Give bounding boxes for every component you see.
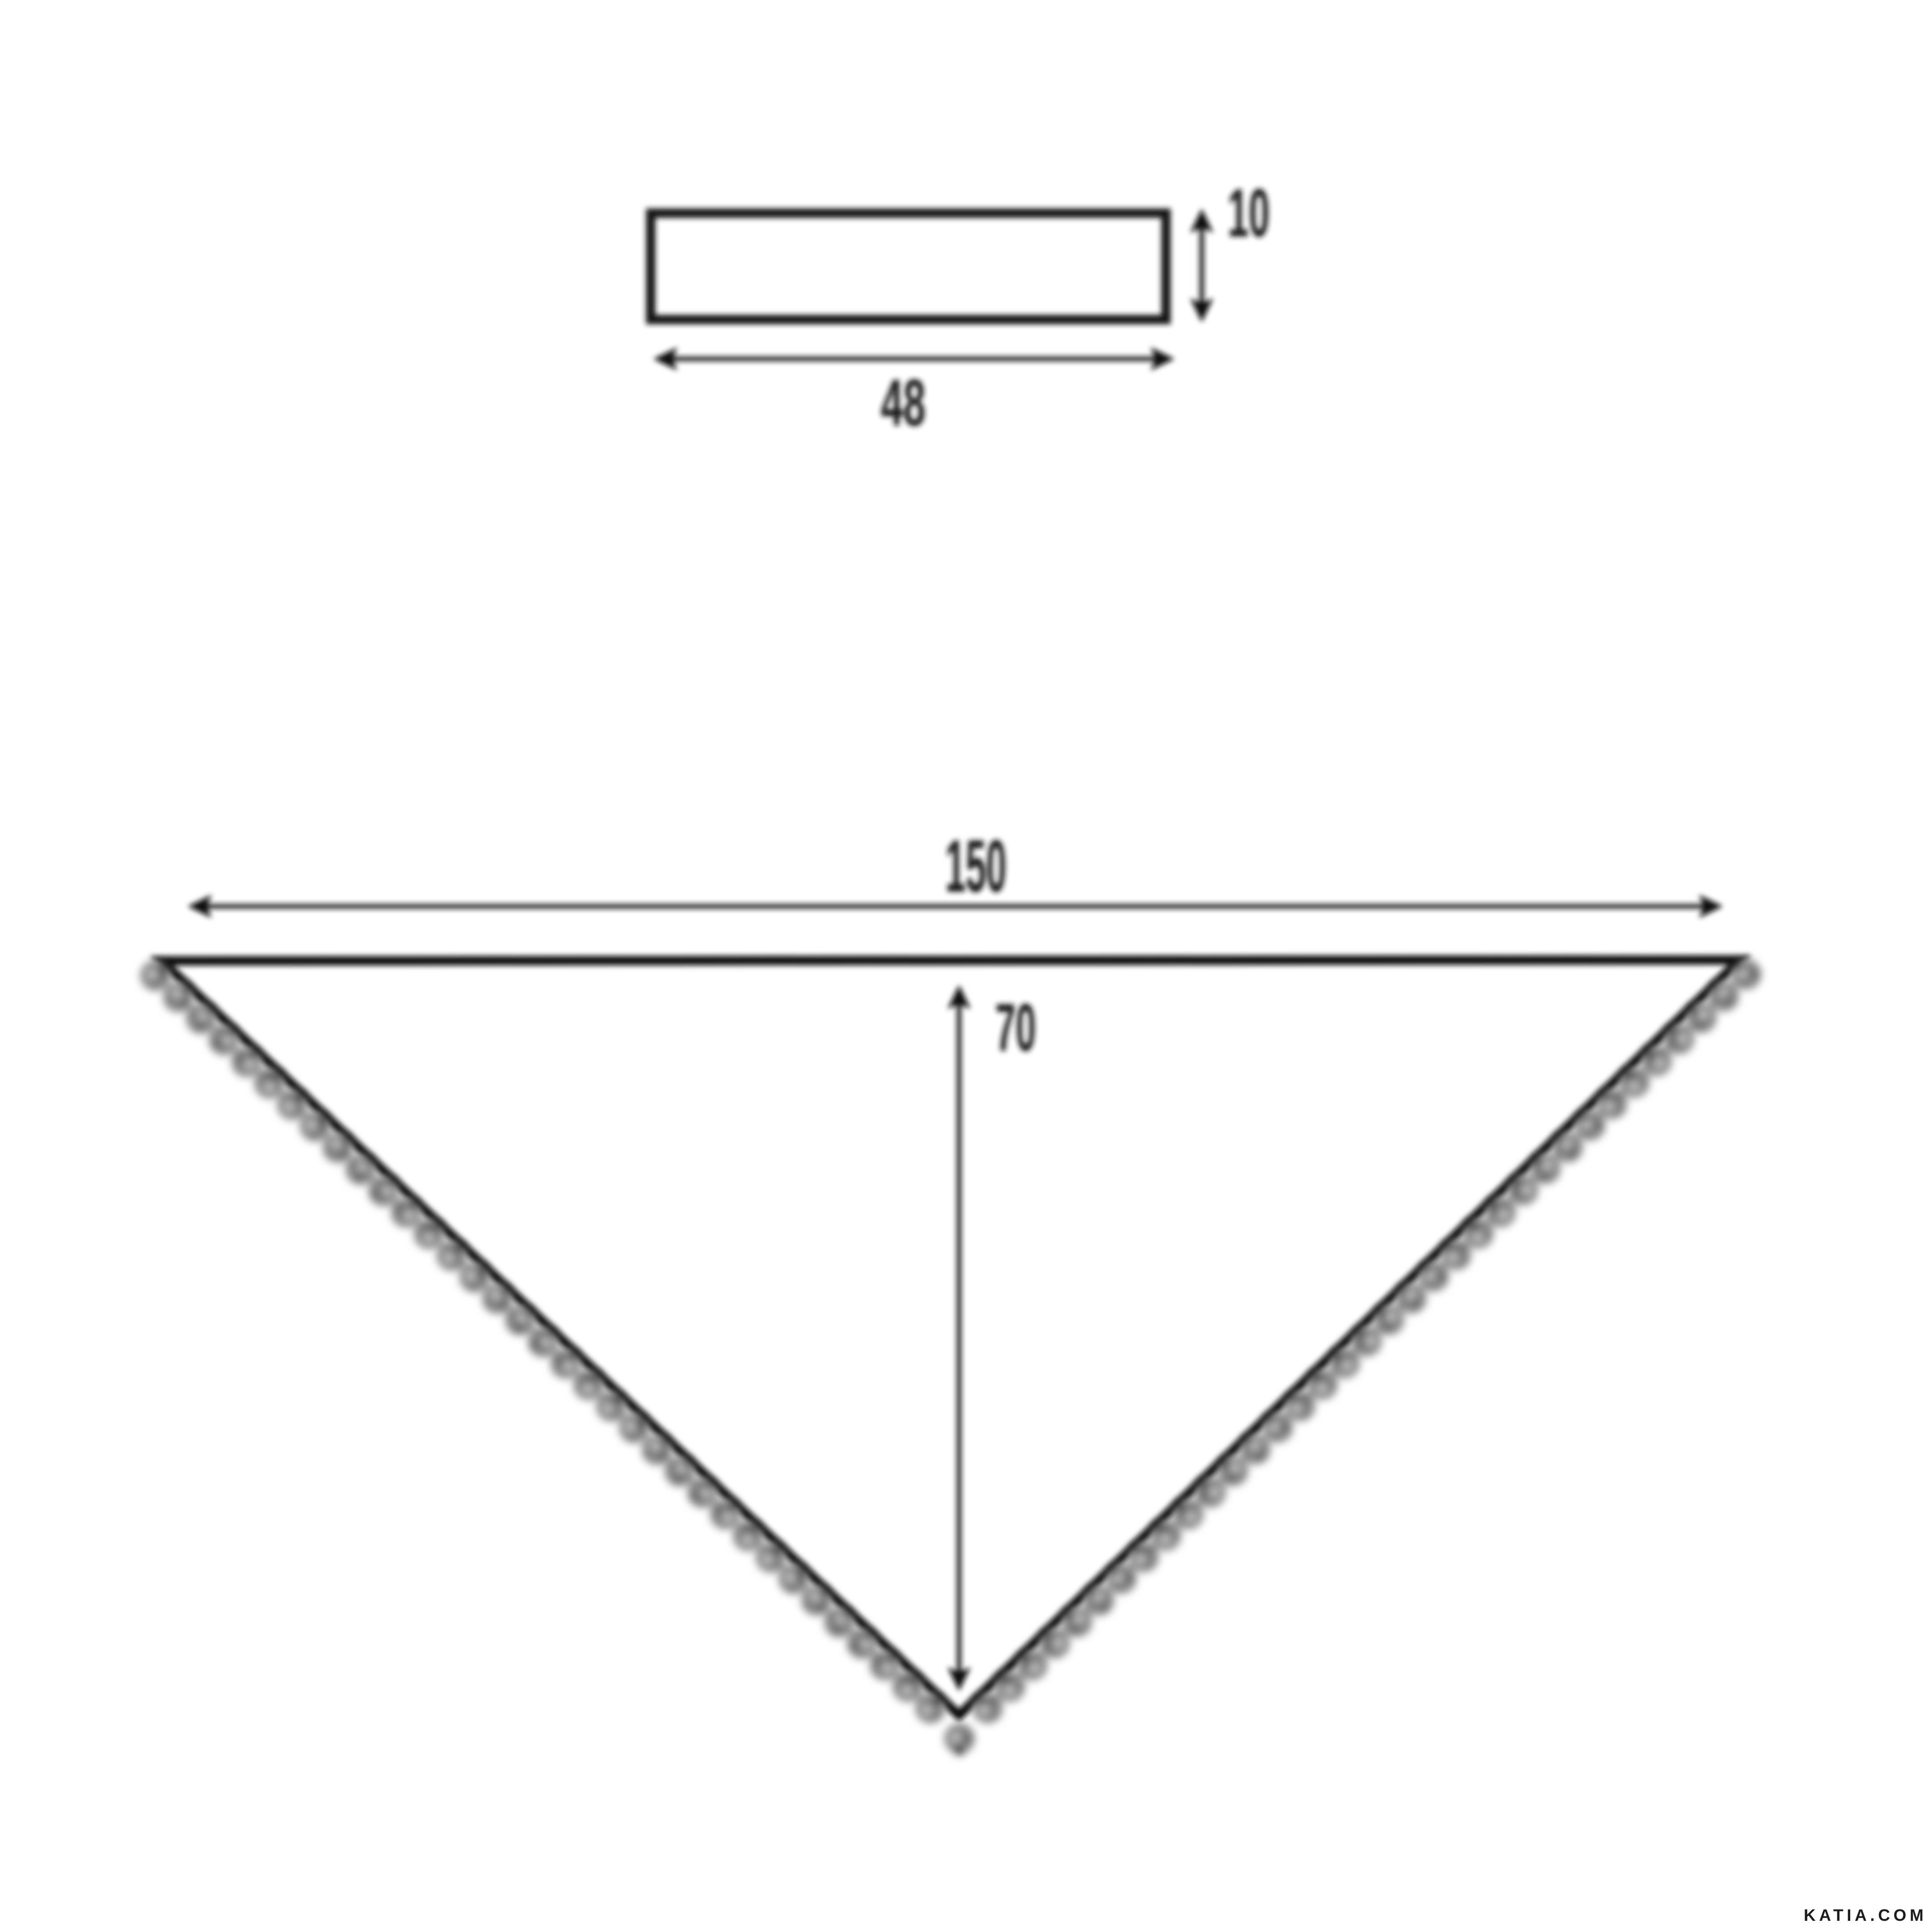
svg-text:KATIA.COM: KATIA.COM	[1804, 1906, 1924, 1924]
svg-text:48: 48	[881, 366, 926, 440]
svg-text:10: 10	[1228, 175, 1270, 251]
svg-text:70: 70	[995, 989, 1036, 1065]
svg-text:150: 150	[945, 825, 1006, 908]
